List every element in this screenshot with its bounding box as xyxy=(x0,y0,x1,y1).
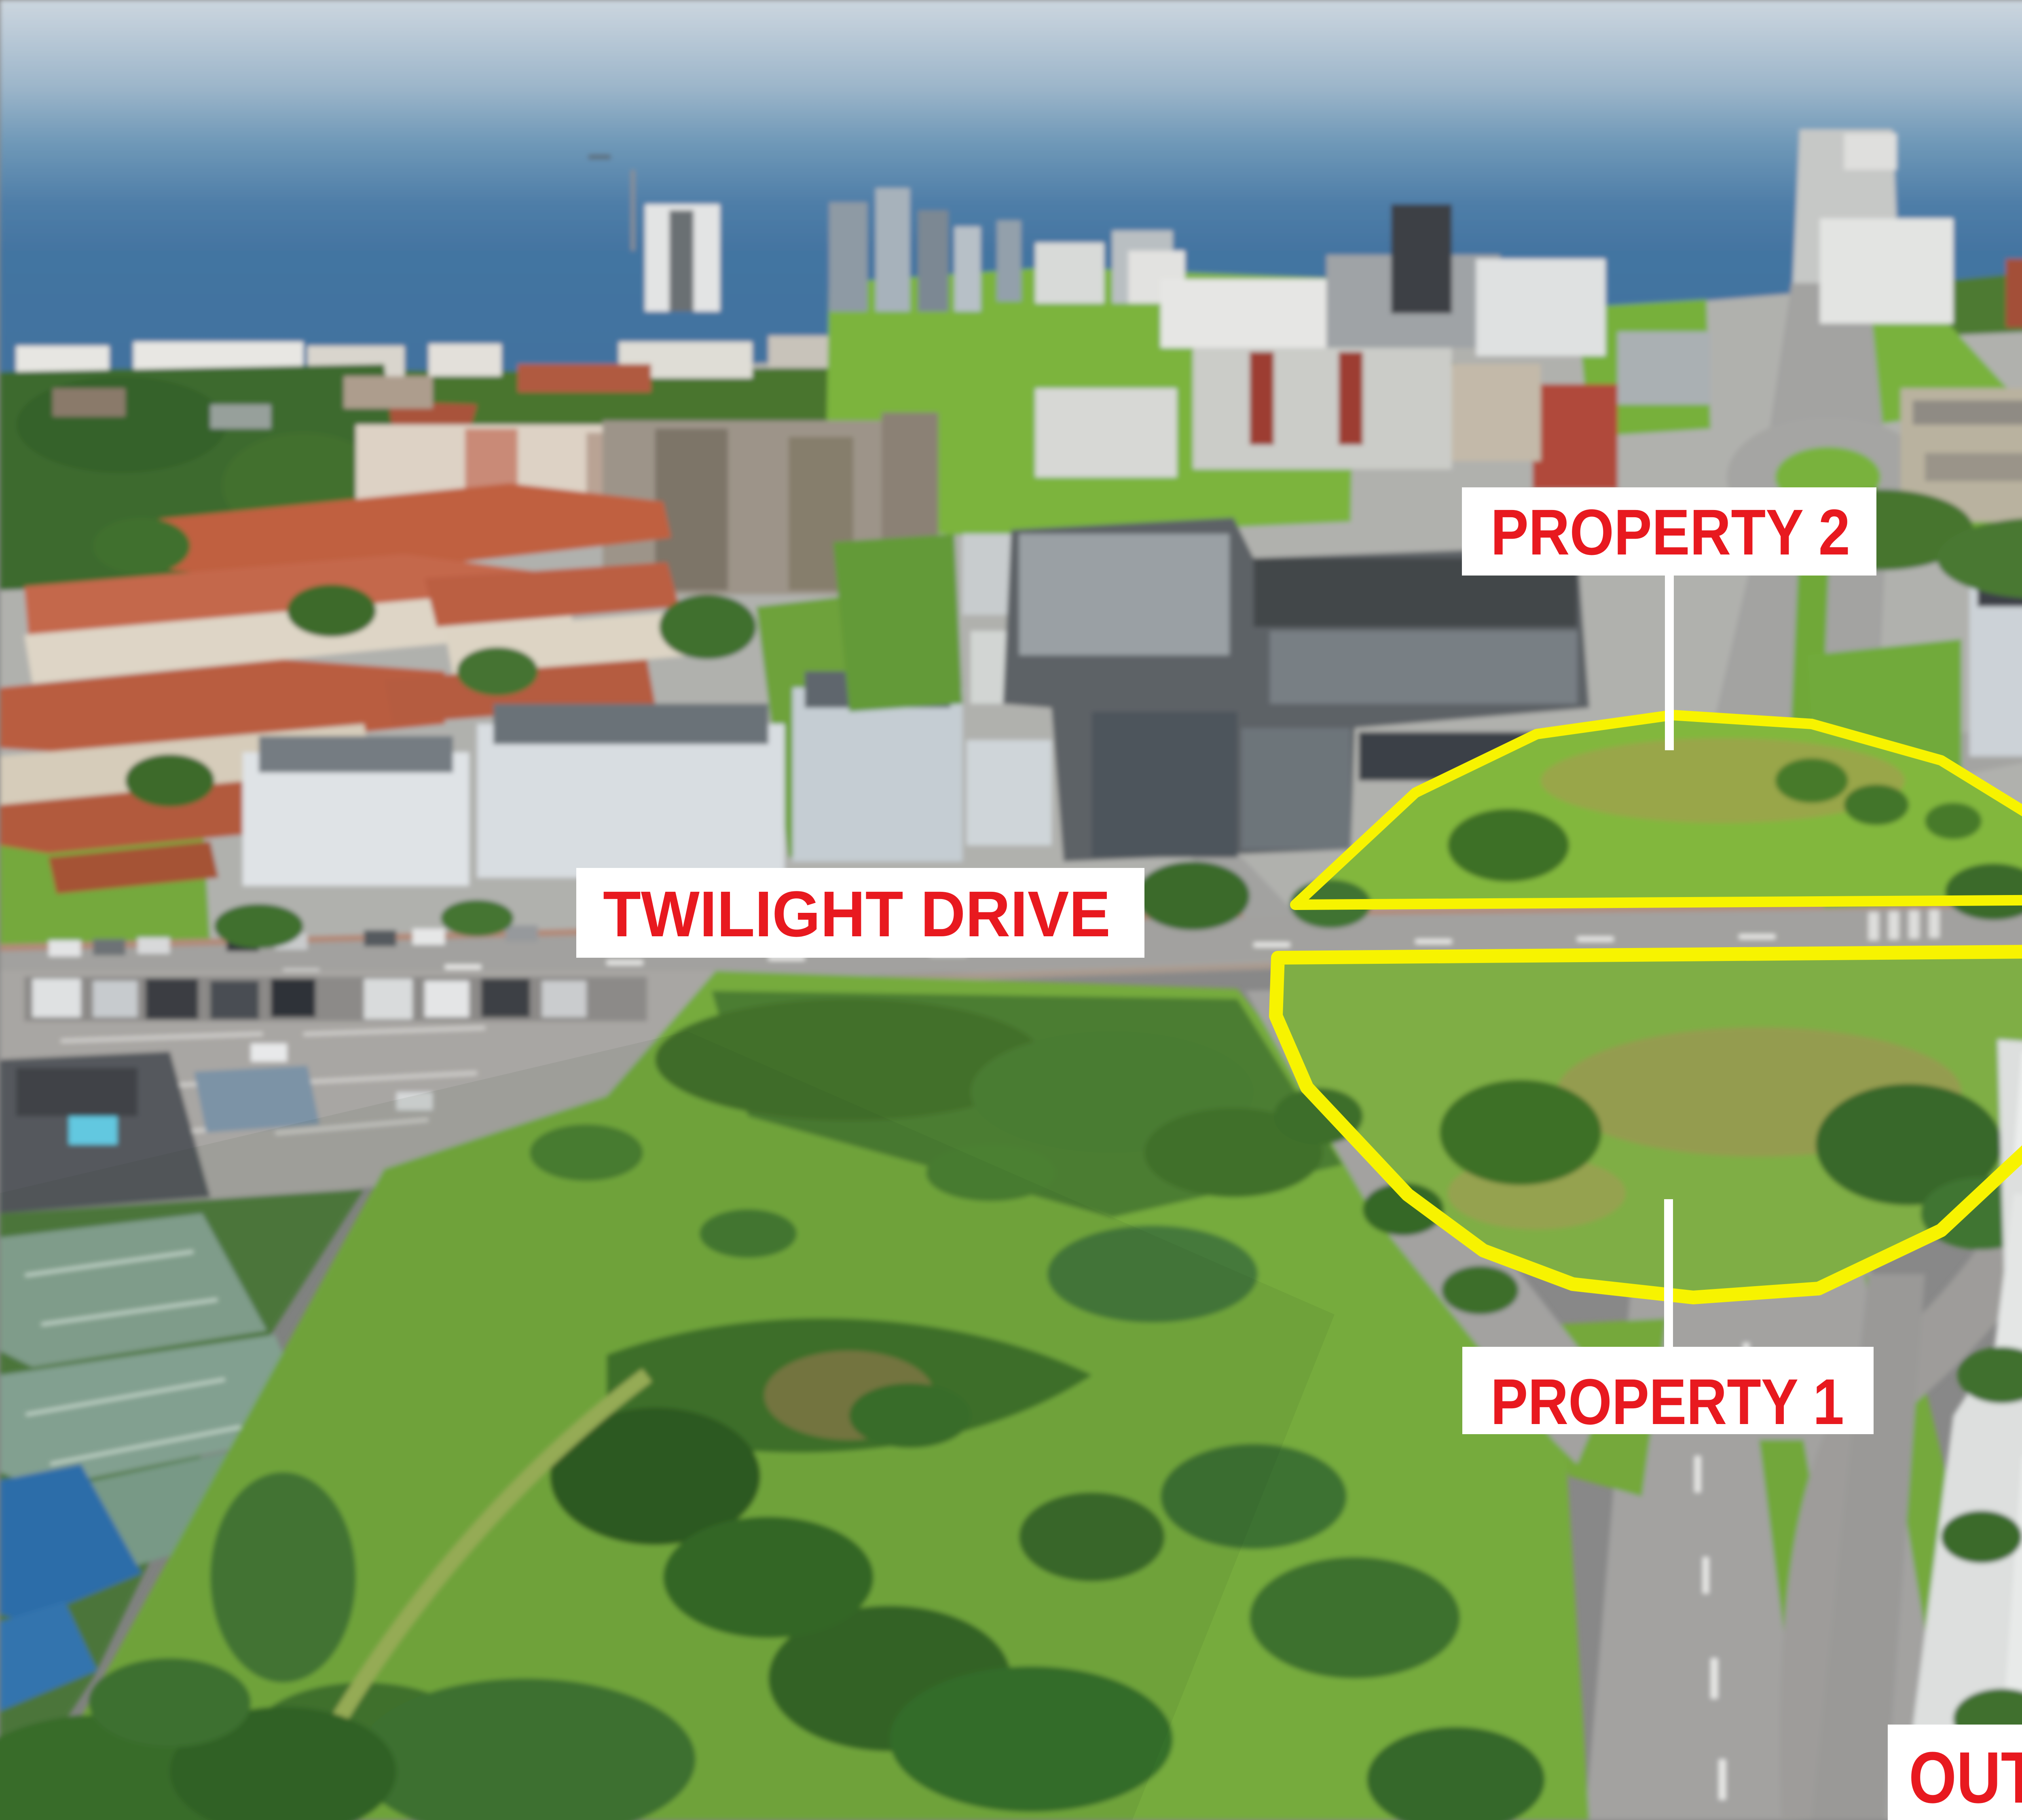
svg-text:OUTLINE TO BE USED AS GUIDELIN: OUTLINE TO BE USED AS GUIDELINE ONLY xyxy=(1909,1737,2022,1818)
svg-text:PROPERTY 1: PROPERTY 1 xyxy=(1491,1365,1844,1438)
svg-text:PROPERTY 2: PROPERTY 2 xyxy=(1491,496,1850,568)
svg-text:TWILIGHT DRIVE: TWILIGHT DRIVE xyxy=(603,878,1110,950)
